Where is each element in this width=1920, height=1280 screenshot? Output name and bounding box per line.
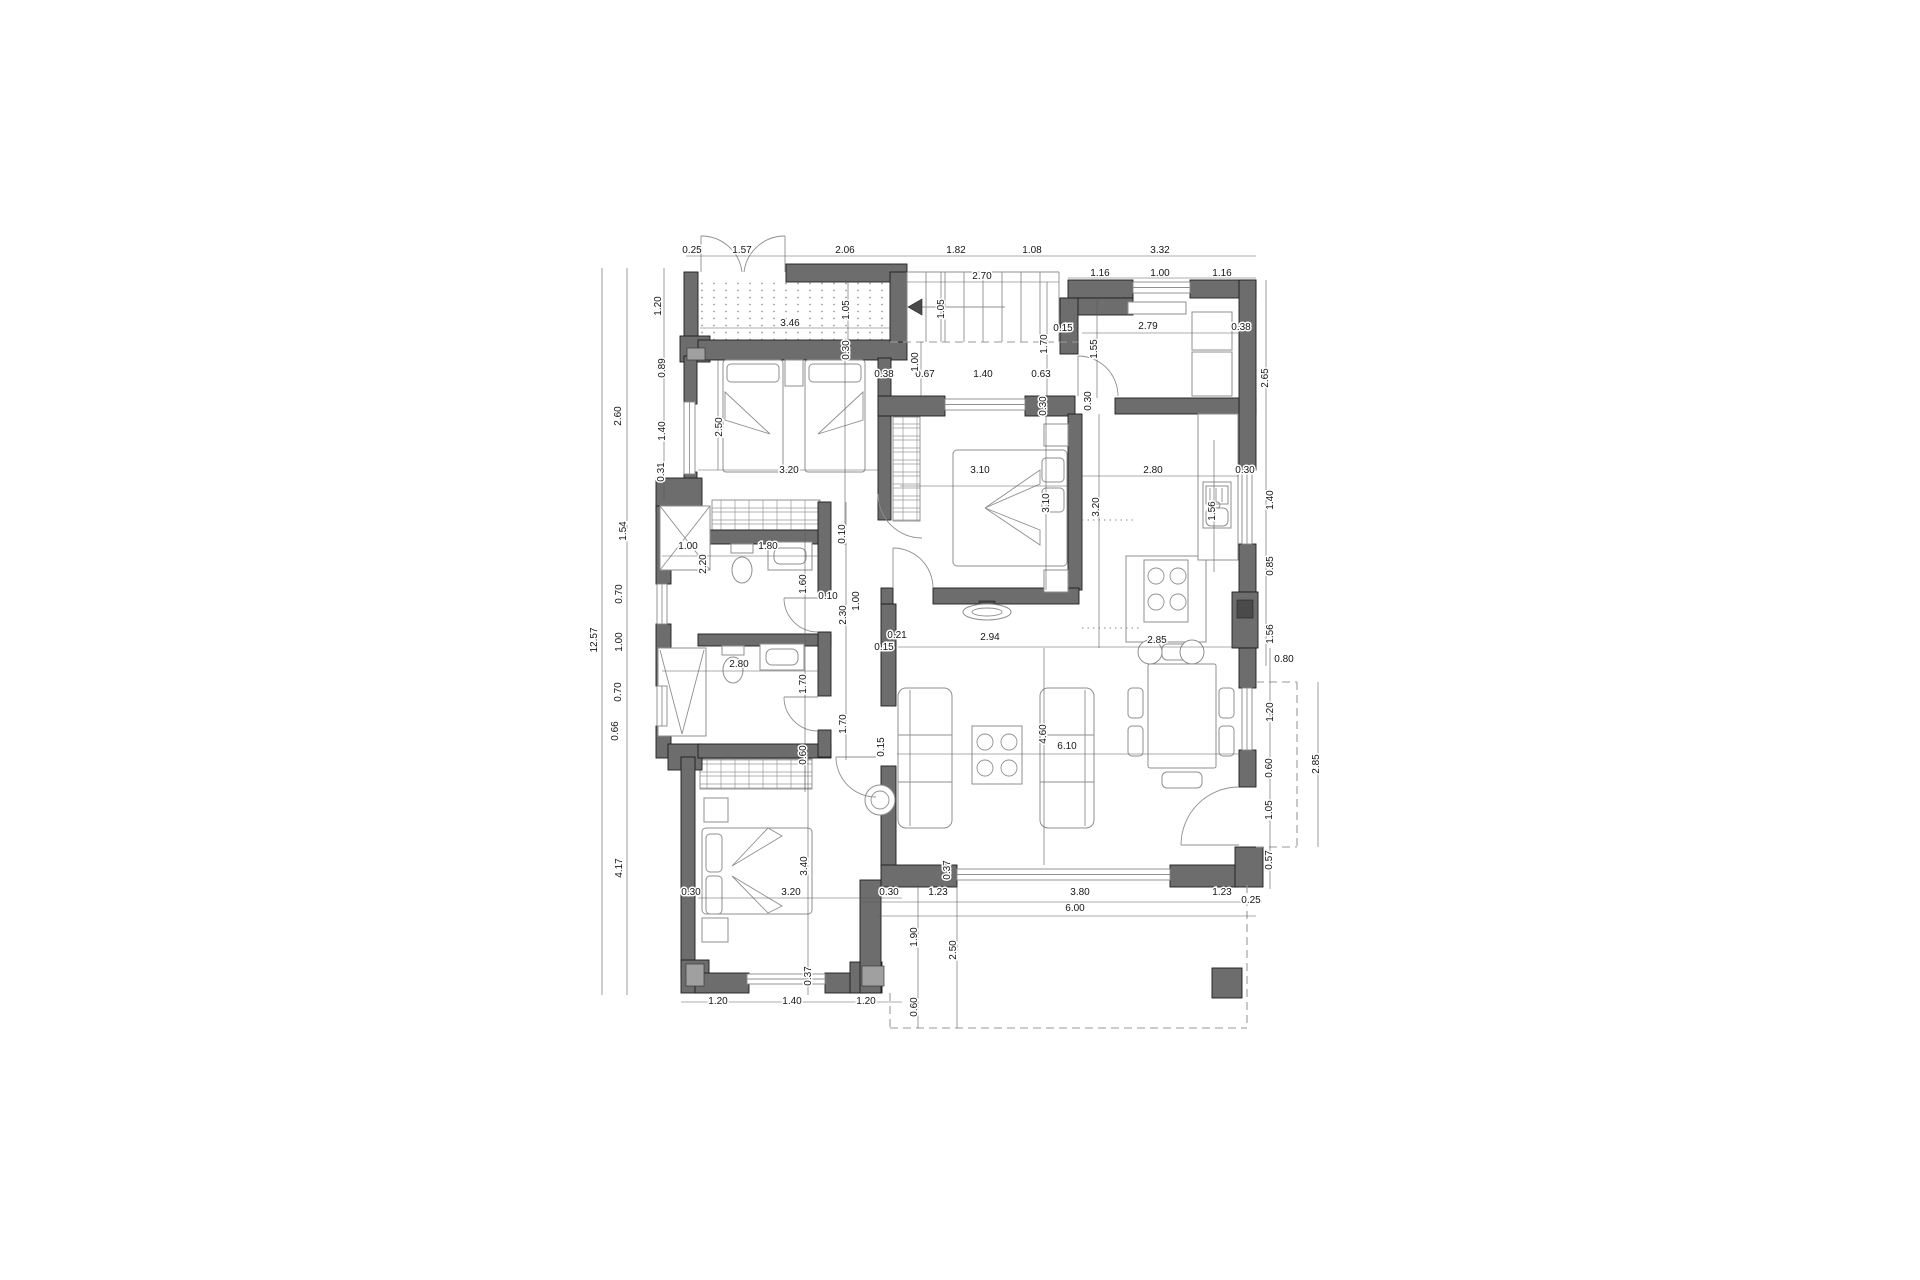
nightstand (785, 360, 803, 386)
floor-plan-page: 0.251.572.061.821.083.321.161.001.162.70… (0, 0, 1920, 1280)
dimension-label: 2.50 (948, 940, 959, 960)
dimension-label: 0.10 (818, 591, 838, 602)
chair (1128, 726, 1143, 756)
dining-right-wall (1239, 648, 1256, 688)
dimension-label: 12.57 (589, 627, 600, 652)
dimension-label: 2.85 (1311, 754, 1322, 774)
hall-wall (818, 730, 831, 757)
dimension-label: 0.30 (681, 887, 701, 898)
dimension-label: 2.80 (729, 659, 749, 670)
dimension-label: 0.38 (874, 369, 894, 380)
cooktop (1144, 560, 1188, 622)
bedroom1-right-wall (878, 358, 891, 520)
dimension-label: 0.30 (1038, 396, 1049, 416)
dimension-label: 3.10 (970, 465, 990, 476)
dimension-label: 0.85 (1265, 556, 1276, 576)
dimension-label: 1.08 (1022, 245, 1042, 256)
dimension-label: 0.30 (1235, 465, 1255, 476)
dimension-label: 0.80 (1274, 654, 1294, 665)
door-arc (1181, 787, 1239, 845)
dimension-label: 0.63 (1031, 369, 1051, 380)
terrace-column (1212, 968, 1242, 998)
dimension-label: 0.60 (798, 745, 809, 765)
dimension-label: 1.00 (1150, 268, 1170, 279)
dimension-label: 2.06 (835, 245, 855, 256)
wood-stove (963, 604, 1011, 620)
dimension-label: 1.20 (1265, 702, 1276, 722)
dimension-label: 3.80 (1070, 887, 1090, 898)
wall (881, 588, 893, 604)
pillow (706, 834, 722, 872)
pillow (1042, 458, 1064, 482)
dimension-label: 2.60 (613, 406, 624, 426)
dimension-label: 1.70 (798, 674, 809, 694)
dimension-label: 1.56 (1207, 501, 1218, 521)
chair (1162, 772, 1202, 788)
dimension-label: 2.50 (714, 417, 725, 437)
porch-left-wall (684, 272, 698, 340)
dimension-label: 0.37 (942, 860, 953, 880)
dimension-label: 3.20 (1091, 497, 1102, 517)
pier (862, 966, 884, 986)
hall-wall (818, 502, 831, 598)
dimension-label: 3.20 (781, 887, 801, 898)
chair (1128, 688, 1143, 718)
dimension-label: 1.40 (1265, 490, 1276, 510)
dimension-label: 0.30 (879, 887, 899, 898)
chair (1219, 726, 1234, 756)
dimension-label: 2.85 (1147, 635, 1167, 646)
nightstand (1044, 424, 1068, 446)
dimension-label: 2.79 (1138, 321, 1158, 332)
dimension-label: 1.54 (618, 521, 629, 541)
dimension-label: 0.38 (1231, 322, 1251, 333)
sofa (1040, 688, 1094, 828)
dimension-label: 2.65 (1260, 368, 1271, 388)
dimension-label: 0.15 (1053, 323, 1073, 334)
closet (712, 500, 820, 530)
stair-arrow (908, 299, 922, 315)
kitchen-right-wall (1239, 280, 1256, 470)
dimension-label: 0.57 (1264, 850, 1275, 870)
dimension-label: 0.31 (656, 462, 667, 482)
wall (1235, 847, 1263, 887)
fridge (1192, 312, 1232, 350)
dimension-label: 2.80 (1143, 465, 1163, 476)
dimension-label: 1.40 (782, 996, 802, 1007)
dimension-label: 1.57 (732, 245, 752, 256)
pantry-counter (1128, 302, 1186, 314)
bedroom1-top-wall (698, 340, 907, 360)
dimension-label: 1.16 (1212, 268, 1232, 279)
pillow (706, 876, 722, 914)
dimension-label: 1.82 (946, 245, 966, 256)
dimension-label: 1.05 (841, 300, 852, 320)
wardrobe (893, 417, 920, 521)
closet (700, 759, 812, 789)
pantry-cabinet (1192, 352, 1232, 396)
coffee-table (972, 726, 1022, 784)
dimension-label: 1.40 (973, 369, 993, 380)
door-arc (784, 598, 818, 632)
stool (1180, 640, 1204, 664)
dimension-label: 1.56 (1265, 624, 1276, 644)
dimension-label: 0.25 (682, 245, 702, 256)
sofa (898, 688, 952, 828)
hall-wall (818, 632, 831, 696)
dimension-label: 1.90 (909, 927, 920, 947)
door-arc (893, 548, 933, 588)
dimension-label: 1.16 (1090, 268, 1110, 279)
nightstand (1044, 570, 1068, 592)
dimension-label: 0.30 (841, 340, 852, 360)
wall (1239, 544, 1256, 592)
dimension-label: 1.20 (653, 296, 664, 316)
dimension-label: 3.46 (780, 318, 800, 329)
dimension-label: 1.00 (678, 541, 698, 552)
dimension-label: 0.15 (874, 642, 894, 653)
dimension-label: 0.89 (657, 358, 668, 378)
dimension-label: 1.00 (614, 632, 625, 652)
toilet-bowl (732, 557, 752, 583)
bath2-bottom-wall (698, 744, 831, 758)
dimension-label: 6.10 (1057, 741, 1077, 752)
dimension-label: 0.37 (803, 966, 814, 986)
dimension-label: 1.20 (856, 996, 876, 1007)
pillow (727, 364, 779, 382)
dimension-label: 0.66 (610, 721, 621, 741)
dimension-label: 1.00 (851, 591, 862, 611)
floor-plan: 0.251.572.061.821.083.321.161.001.162.70… (0, 0, 1920, 1280)
dimension-label: 3.40 (799, 856, 810, 876)
dimension-label: 1.60 (798, 574, 809, 594)
pier (686, 964, 704, 986)
column (1237, 600, 1253, 618)
porch-hatch (698, 282, 888, 340)
dimension-label: 0.60 (909, 997, 920, 1017)
pier (687, 348, 705, 360)
dimension-label: 1.70 (1039, 334, 1050, 354)
dimension-label: 3.10 (1041, 493, 1052, 513)
dimension-label: 0.15 (876, 737, 887, 757)
dimension-label: 1.20 (708, 996, 728, 1007)
dimension-label: 1.05 (1264, 800, 1275, 820)
dimension-label: 1.05 (936, 299, 947, 319)
dimension-label: 0.30 (1083, 391, 1094, 411)
washbasin (766, 649, 798, 665)
door-arc (784, 697, 818, 731)
nightstand (704, 798, 728, 822)
dimension-label: 1.55 (1089, 339, 1100, 359)
dimension-label: 1.40 (657, 421, 668, 441)
wall (684, 356, 697, 404)
dimension-label: 1.70 (838, 714, 849, 734)
dimension-label: 4.17 (614, 858, 625, 878)
dimension-label: 2.94 (980, 632, 1000, 643)
dimension-label: 0.10 (837, 524, 848, 544)
dimension-label: 2.20 (698, 554, 709, 574)
toilet-tank (722, 646, 744, 655)
living-left-wall (881, 766, 896, 867)
pillow (809, 364, 861, 382)
dimension-label: 4.60 (1038, 724, 1049, 744)
dimension-label: 6.00 (1065, 903, 1085, 914)
bedroom2-right-wall (1068, 414, 1082, 590)
dimension-label: 2.70 (972, 271, 992, 282)
kitchen-top-wall (1068, 280, 1133, 298)
chair (1219, 688, 1234, 718)
dimension-label: 3.20 (779, 465, 799, 476)
dimension-label: 1.80 (758, 541, 778, 552)
dining-table (1148, 664, 1216, 768)
porch-top-wall (786, 264, 907, 282)
toilet-tank (731, 544, 753, 553)
porch-right-wall (890, 272, 907, 342)
bedroom2-top-wall (878, 396, 945, 416)
dimension-label: 0.70 (613, 682, 624, 702)
wood-stove (865, 785, 895, 815)
dimension-label: 1.00 (910, 352, 921, 372)
living-left-wall (881, 604, 896, 706)
dimension-label: 0.60 (1264, 758, 1275, 778)
dimension-label: 1.23 (1212, 887, 1232, 898)
dimension-label: 2.30 (838, 605, 849, 625)
wall (1025, 396, 1075, 416)
dimension-label: 0.25 (1241, 895, 1261, 906)
living-bottom-wall (1170, 865, 1238, 887)
pantry-divider-wall (1115, 398, 1256, 414)
dimension-label: 0.70 (614, 584, 625, 604)
nightstand (702, 918, 728, 942)
wall (1239, 750, 1256, 787)
entry-door-arc (1078, 356, 1118, 396)
dimension-label: 0.21 (887, 630, 907, 641)
dimension-label: 1.23 (928, 887, 948, 898)
bedroom3-left-wall (681, 757, 695, 977)
dimension-label: 3.32 (1150, 245, 1170, 256)
